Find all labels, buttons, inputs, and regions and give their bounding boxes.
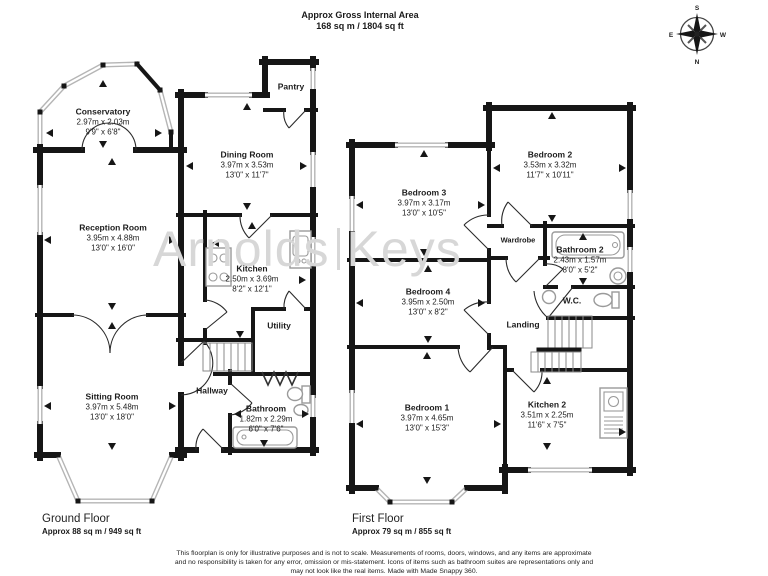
gross-internal-area-header: Approx Gross Internal Area 168 sq m / 18…	[160, 10, 560, 32]
floorplan-page: S N E W Arnolds Keys Approx Gross Intern…	[0, 0, 768, 576]
room-label-pantry: Pantry	[278, 82, 304, 93]
room-imperial: 9'9" x 6'8"	[76, 128, 131, 138]
watermark-right-text: Keys	[347, 220, 462, 278]
room-name: Bedroom 3	[398, 188, 451, 199]
room-metric: 3.97m x 5.48m	[86, 403, 139, 413]
room-metric: 3.95m x 2.50m	[402, 298, 455, 308]
room-label-wardrobe: Wardrobe	[501, 235, 536, 246]
first-floor-walls	[349, 105, 633, 505]
room-name: Reception Room	[79, 223, 147, 234]
room-imperial: 13'0" x 8'2"	[402, 308, 455, 318]
room-label-kitchen: Kitchen 2.50m x 3.69m 8'2" x 12'1"	[226, 264, 279, 295]
room-imperial: 11'6" x 7'5"	[521, 421, 574, 431]
room-name: Sitting Room	[86, 392, 139, 403]
bathroom2-basin	[610, 268, 626, 284]
floorplan-drawing: S N E W	[0, 0, 768, 576]
room-imperial: 13'0" x 11'7"	[221, 171, 274, 181]
room-metric: 3.97m x 3.53m	[221, 161, 274, 171]
room-name: Hallway	[196, 386, 228, 397]
room-metric: 2.43m x 1.57m	[554, 256, 607, 266]
room-label-bedroom4: Bedroom 4 3.95m x 2.50m 13'0" x 8'2"	[402, 287, 455, 318]
disclaimer-line-3: may not look like the real items. Made w…	[0, 567, 768, 576]
room-imperial: 13'0" x 15'3"	[401, 424, 454, 434]
room-label-dining: Dining Room 3.97m x 3.53m 13'0" x 11'7"	[221, 150, 274, 181]
room-label-kitchen2: Kitchen 2 3.51m x 2.25m 11'6" x 7'5"	[521, 400, 574, 431]
room-name: Bedroom 1	[401, 403, 454, 414]
bathroom-toilet	[288, 386, 311, 403]
room-metric: 3.53m x 3.32m	[524, 161, 577, 171]
room-name: Bedroom 2	[524, 150, 577, 161]
room-name: Kitchen 2	[521, 400, 574, 411]
room-name: Conservatory	[76, 107, 131, 118]
room-name: Pantry	[278, 82, 304, 93]
room-label-reception: Reception Room 3.95m x 4.88m 13'0" x 16'…	[79, 223, 147, 254]
room-label-bathroom2: Bathroom 2 2.43m x 1.57m 8'0" x 5'2"	[554, 245, 607, 276]
disclaimer-line-1: This floorplan is only for illustrative …	[0, 549, 768, 558]
floor-title: Ground Floor	[42, 512, 141, 526]
room-imperial: 11'7" x 10'11"	[524, 171, 577, 181]
room-label-bedroom3: Bedroom 3 3.97m x 3.17m 13'0" x 10'5"	[398, 188, 451, 219]
room-label-utility: Utility	[267, 321, 291, 332]
first-floor-stairs	[531, 316, 592, 372]
room-imperial: 8'2" x 12'1"	[226, 285, 279, 295]
room-metric: 3.97m x 4.65m	[401, 414, 454, 424]
wc-basin	[543, 291, 556, 304]
room-name: Bathroom 2	[554, 245, 607, 256]
compass-top-label: S	[695, 5, 700, 12]
room-metric: 3.97m x 3.17m	[398, 199, 451, 209]
disclaimer-line-2: and no responsibility is taken for any e…	[0, 558, 768, 567]
room-metric: 2.50m x 3.69m	[226, 275, 279, 285]
room-name: Bedroom 4	[402, 287, 455, 298]
header-title: Approx Gross Internal Area	[160, 10, 560, 21]
room-imperial: 13'0" x 16'0"	[79, 244, 147, 254]
room-imperial: 8'0" x 5'2"	[554, 266, 607, 276]
header-area-value: 168 sq m / 1804 sq ft	[160, 21, 560, 32]
ground-floor-stairs	[203, 343, 252, 371]
room-label-hallway: Hallway	[196, 386, 228, 397]
first-floor-label: First Floor Approx 79 sq m / 855 sq ft	[352, 512, 451, 537]
room-metric: 3.95m x 4.88m	[79, 234, 147, 244]
room-imperial: 13'0" x 10'5"	[398, 209, 451, 219]
floor-title: First Floor	[352, 512, 451, 526]
room-metric: 1.82m x 2.29m	[240, 415, 293, 425]
room-name: Kitchen	[226, 264, 279, 275]
room-name: Bathroom	[240, 404, 293, 415]
room-name: Wardrobe	[501, 235, 536, 246]
room-label-landing: Landing	[506, 320, 539, 331]
room-label-bedroom1: Bedroom 1 3.97m x 4.65m 13'0" x 15'3"	[401, 403, 454, 434]
first-floor-plan	[349, 105, 633, 505]
room-metric: 2.97m x 2.03m	[76, 118, 131, 128]
compass-right-label: W	[720, 32, 727, 39]
disclaimer-text: This floorplan is only for illustrative …	[0, 549, 768, 576]
room-label-wc: W.C.	[563, 296, 581, 307]
compass-bottom-label: N	[695, 59, 700, 66]
room-name: W.C.	[563, 296, 581, 307]
room-name: Dining Room	[221, 150, 274, 161]
ground-floor-label: Ground Floor Approx 88 sq m / 949 sq ft	[42, 512, 141, 537]
room-metric: 3.51m x 2.25m	[521, 411, 574, 421]
compass-left-label: E	[669, 32, 674, 39]
wc-toilet	[594, 292, 619, 308]
room-imperial: 6'0" x 7'6"	[240, 425, 293, 435]
room-label-sitting: Sitting Room 3.97m x 5.48m 13'0" x 18'0"	[86, 392, 139, 423]
room-label-conservatory: Conservatory 2.97m x 2.03m 9'9" x 6'8"	[76, 107, 131, 138]
watermark-divider	[337, 228, 340, 270]
compass-rose-icon: S N E W	[669, 5, 727, 66]
room-label-bathroom: Bathroom 1.82m x 2.29m 6'0" x 7'6"	[240, 404, 293, 435]
room-name: Landing	[506, 320, 539, 331]
agency-watermark: Arnolds Keys	[153, 220, 462, 278]
floor-area: Approx 88 sq m / 949 sq ft	[42, 526, 141, 537]
room-imperial: 13'0" x 18'0"	[86, 413, 139, 423]
room-label-bedroom2: Bedroom 2 3.53m x 3.32m 11'7" x 10'11"	[524, 150, 577, 181]
room-name: Utility	[267, 321, 291, 332]
floor-area: Approx 79 sq m / 855 sq ft	[352, 526, 451, 537]
